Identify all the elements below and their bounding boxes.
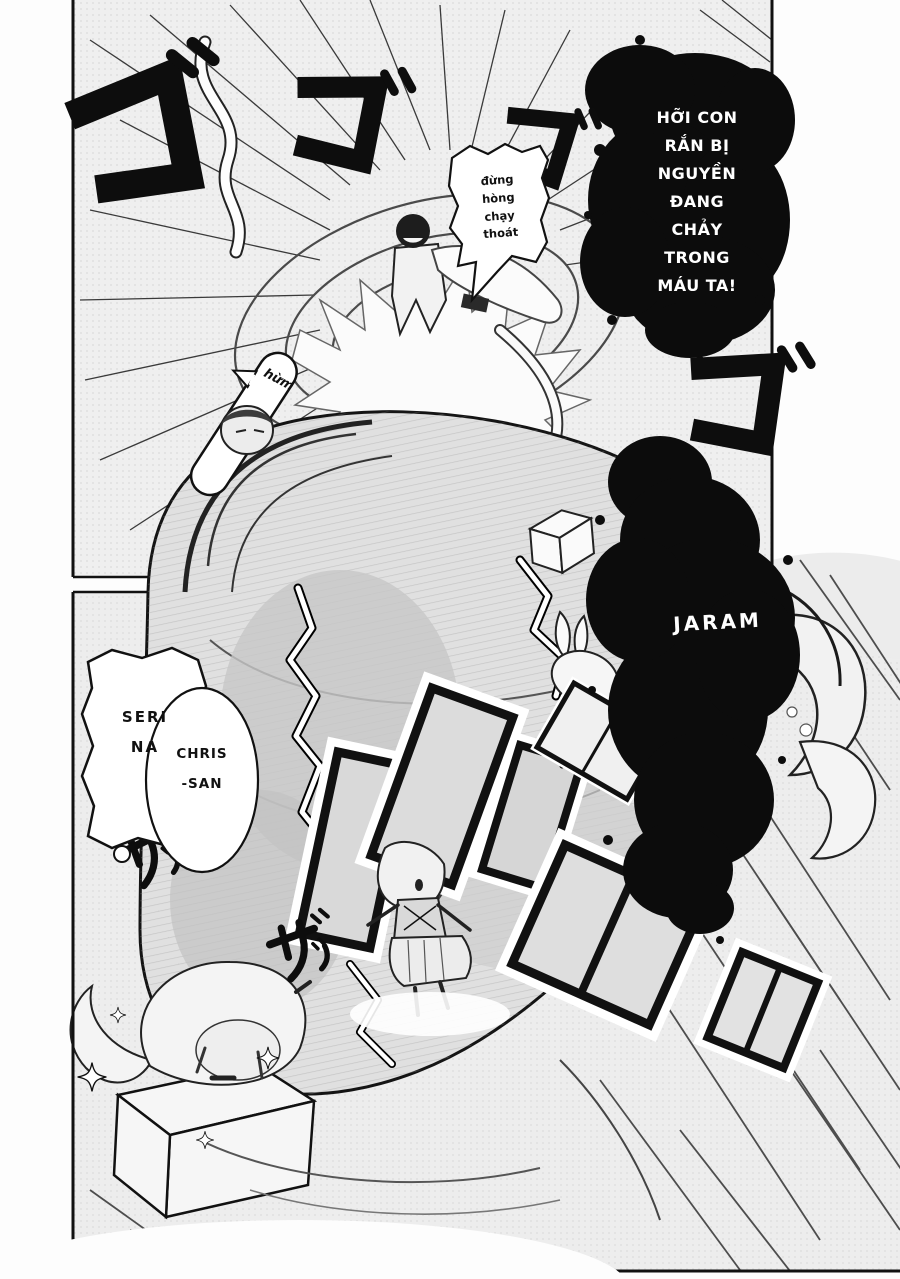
curse-line: NGUYỀN <box>618 160 776 188</box>
curse-line: MÁU TA! <box>618 272 776 300</box>
chris-speech-text: CHRIS -SAN <box>152 740 252 799</box>
curse-speech-text: HỠI CON RẮN BỊ NGUYỀN ĐANG CHẢY TRONG MÁ… <box>618 104 776 300</box>
serina-line: SERI <box>85 702 205 732</box>
curse-line: TRONG <box>618 244 776 272</box>
manga-page: HỠI CON RẮN BỊ NGUYỀN ĐANG CHẢY TRONG MÁ… <box>0 0 900 1279</box>
curse-line: CHẢY <box>618 216 776 244</box>
curse-line: RẮN BỊ <box>618 132 776 160</box>
peeking-face <box>221 406 273 454</box>
curse-line: ĐANG <box>618 188 776 216</box>
chris-line: -SAN <box>152 770 252 800</box>
curse-line: HỠI CON <box>618 104 776 132</box>
escape-speech-text: đừng hòng chạy thoát <box>453 169 546 246</box>
chris-line: CHRIS <box>152 740 252 770</box>
